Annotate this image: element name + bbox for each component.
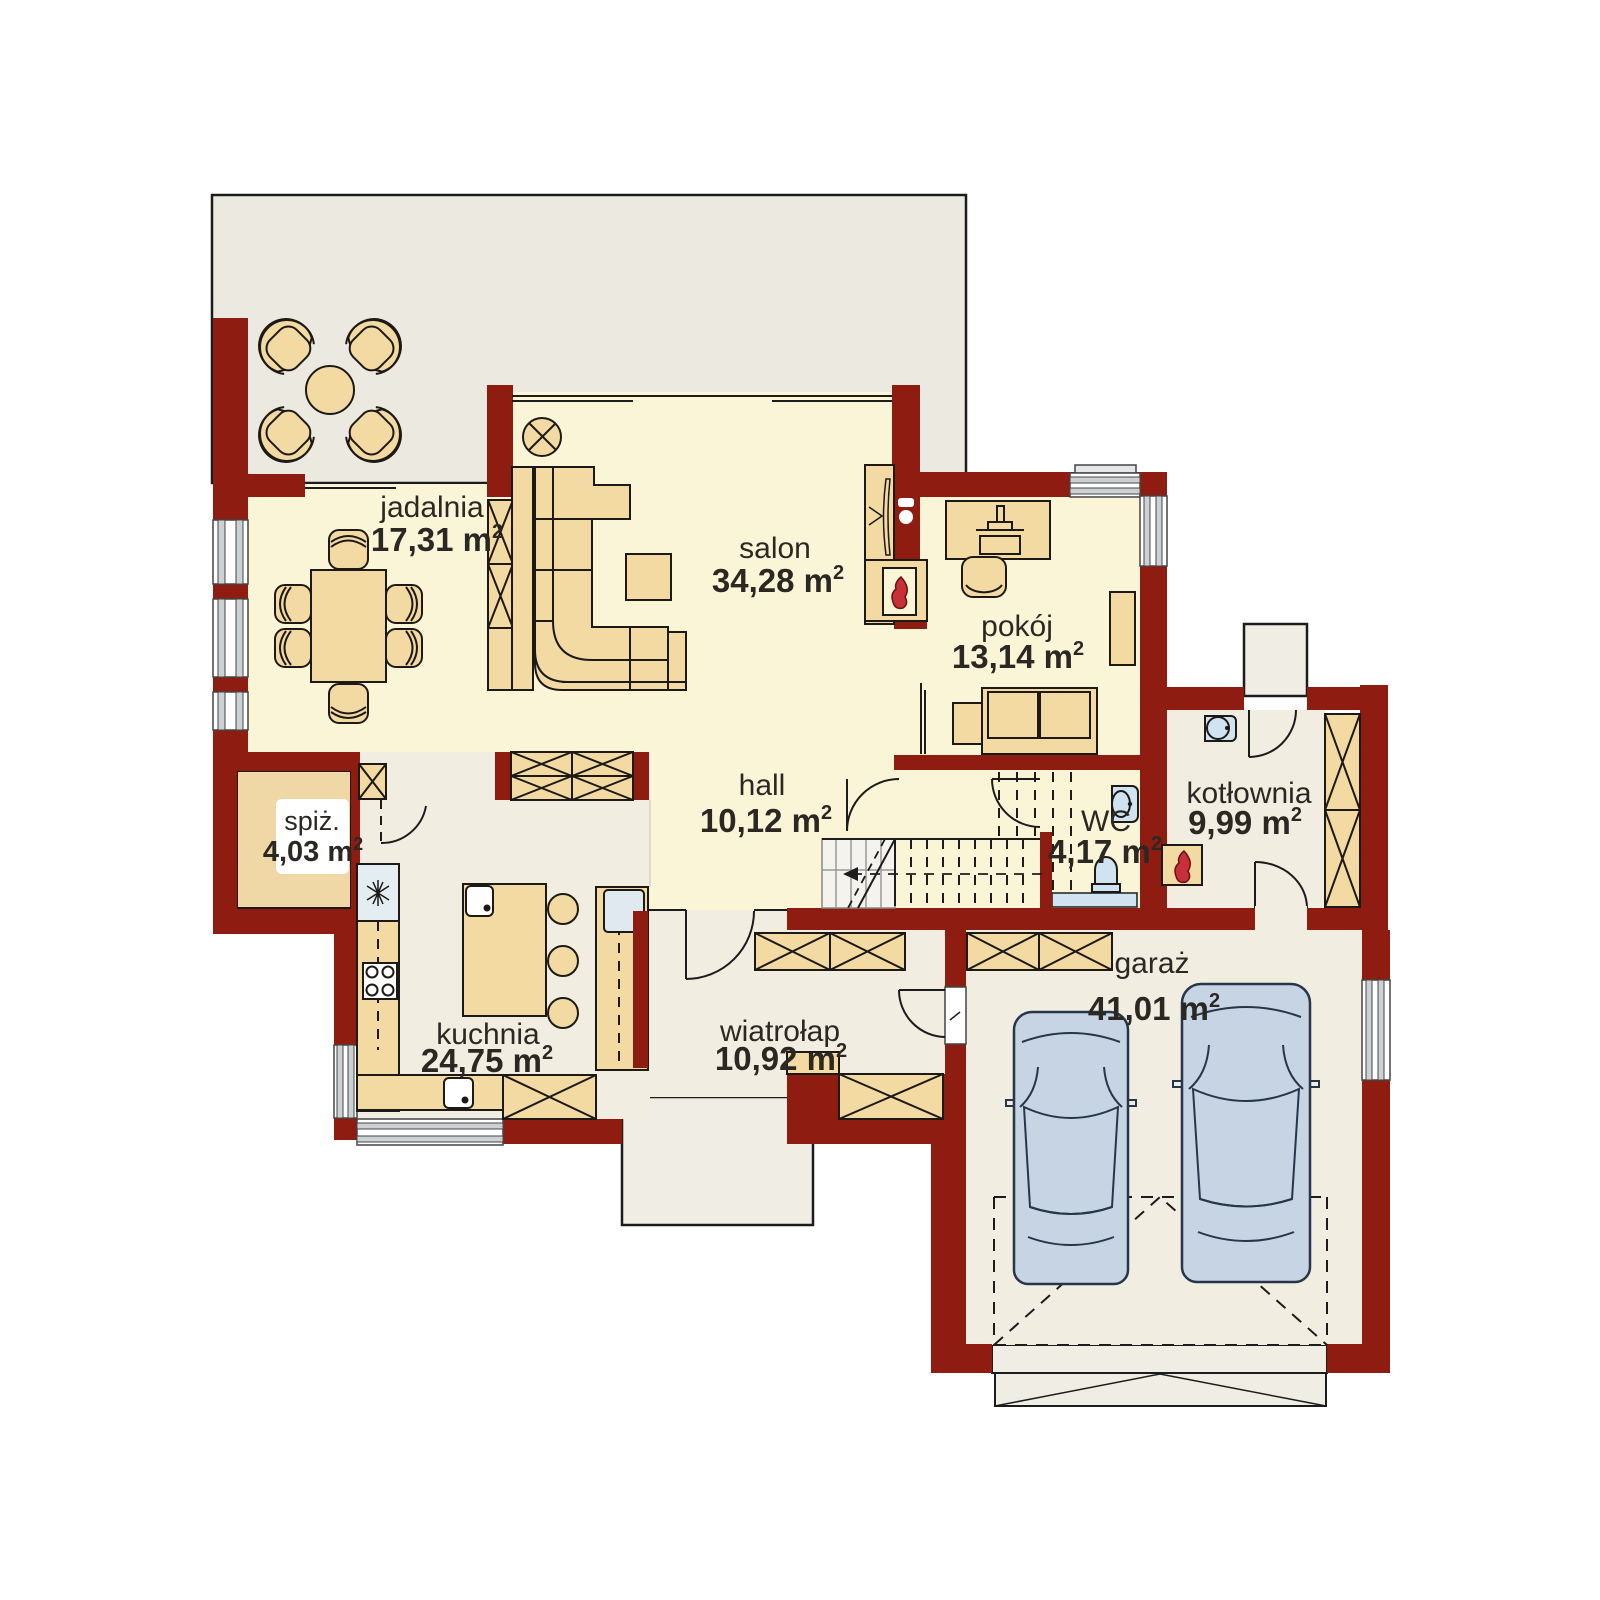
svg-text:spiż.: spiż. bbox=[284, 806, 340, 836]
svg-text:17,31 m2: 17,31 m2 bbox=[371, 521, 503, 558]
svg-text:hall: hall bbox=[739, 769, 786, 802]
svg-text:salon: salon bbox=[739, 532, 811, 565]
svg-text:4,03 m2: 4,03 m2 bbox=[263, 834, 363, 868]
svg-text:jadalnia: jadalnia bbox=[379, 491, 484, 524]
svg-text:10,92 m2: 10,92 m2 bbox=[715, 1040, 847, 1077]
svg-text:24,75 m2: 24,75 m2 bbox=[421, 1042, 553, 1079]
svg-text:34,28 m2: 34,28 m2 bbox=[712, 562, 844, 599]
svg-text:41,01 m2: 41,01 m2 bbox=[1088, 990, 1220, 1027]
svg-text:4,17 m2: 4,17 m2 bbox=[1048, 833, 1162, 870]
svg-text:9,99 m2: 9,99 m2 bbox=[1188, 804, 1302, 841]
svg-text:10,12 m2: 10,12 m2 bbox=[700, 802, 832, 839]
svg-text:garaż: garaż bbox=[1114, 947, 1189, 980]
svg-text:13,14 m2: 13,14 m2 bbox=[952, 638, 1084, 675]
